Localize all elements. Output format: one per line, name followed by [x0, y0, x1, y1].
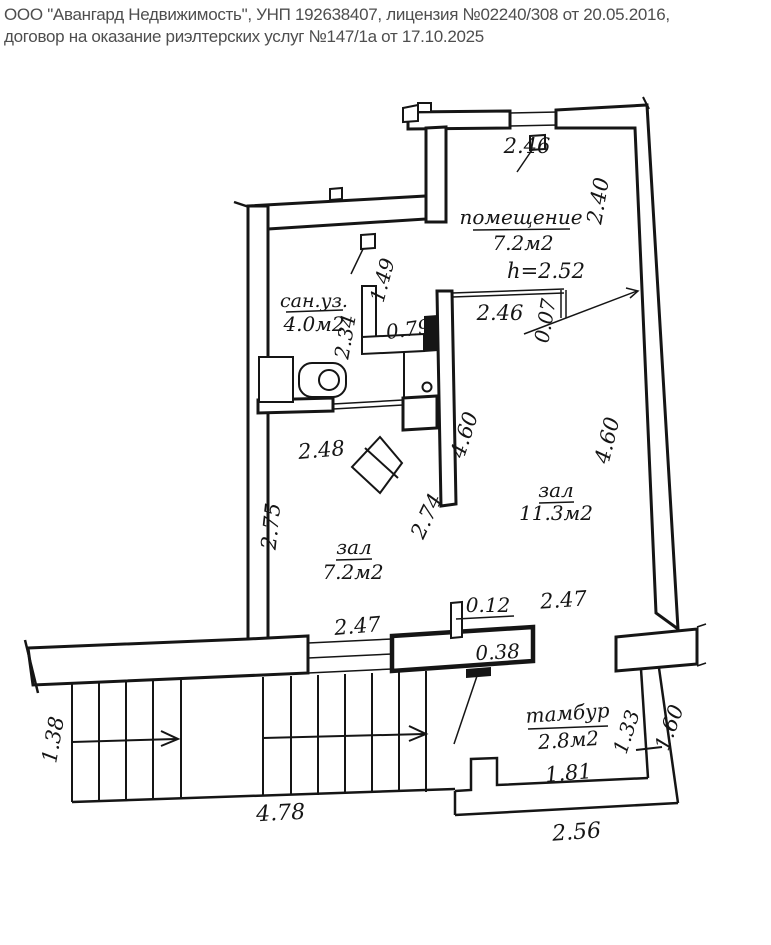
dim-pom-partition-thk: 0.07	[529, 297, 560, 345]
block-notch	[466, 667, 491, 678]
table-icon	[352, 437, 402, 493]
floor-plan-page: ООО "Авангард Недвижимость", УНП 1926384…	[0, 0, 771, 945]
wall-sanuz-bottom-right	[403, 396, 437, 430]
dim-tambour-inner-width: 1.81	[544, 759, 593, 787]
room-hall-big-area: 11.3м2	[519, 501, 593, 525]
dim-tambour-right-outer: 1.60	[650, 702, 689, 754]
dim-stairs-run-len: 4.78	[255, 800, 306, 828]
wall-inner-partition	[437, 291, 456, 506]
dim-right-wall-len: 4.60	[590, 415, 625, 467]
room-pomeshchenie-underline	[473, 229, 570, 230]
wall-stub-012	[451, 602, 462, 638]
window-bottom	[308, 639, 392, 673]
wall-top-left-flare	[403, 105, 418, 122]
room-sanuzel-label: сан.уз.	[280, 290, 348, 312]
room-hall-small-area: 7.2м2	[322, 560, 383, 584]
floor-plan-svg: помещение 7.2м2 h=2.52 сан.уз. 4.0м2 зал…	[0, 0, 771, 945]
lamp-icon-sanuzel	[351, 234, 375, 274]
wall-right	[556, 105, 678, 629]
stairs-flight1-centerline	[72, 739, 176, 742]
toilet-bowl-icon	[319, 370, 339, 390]
wall-stairs-top	[28, 636, 308, 685]
tambour-outer-bottom	[455, 803, 678, 815]
room-hall-big-label: зал	[538, 478, 574, 502]
wall-sanuz-top-stub	[330, 188, 342, 200]
sanuz-door-line1	[333, 400, 403, 404]
dim-pom-partition-len: 2.46	[476, 301, 524, 325]
pier-tick-top	[697, 624, 706, 627]
cabinet-icon	[259, 357, 293, 402]
room-hall-small-label: зал	[336, 535, 372, 559]
tambour-inner-right	[641, 669, 648, 778]
dim-hall-small-right: 2.74	[405, 490, 447, 543]
room-pomeshchenie-label: помещение	[459, 205, 582, 229]
stairs-flight2-treads	[263, 671, 426, 796]
dim-stairs-flight-width: 1.38	[37, 715, 69, 765]
wall-top-left-stub	[418, 103, 431, 112]
dim-stub-width: 0.12	[466, 593, 511, 617]
room-tambour-area: 2.8м2	[536, 726, 600, 754]
dim-right-wall-upper: 2.40	[582, 176, 614, 227]
dim-hall-small-left: 2.75	[257, 502, 286, 552]
ceiling-height-note: h=2.52	[507, 259, 585, 283]
dim-window-width: 2.47	[332, 612, 382, 640]
dim-block-width: 0.38	[475, 639, 521, 665]
room-tambour-label: тамбур	[525, 698, 611, 728]
room-pomeshchenie-area: 7.2м2	[492, 231, 553, 255]
dim-top-window: 2.46	[503, 134, 551, 158]
dim-sanuz-width: 2.48	[296, 436, 346, 464]
dim-hall-big-bottom: 2.47	[538, 586, 588, 613]
sanuz-door-line2	[333, 405, 403, 409]
dim-closet-depth: 1.49	[365, 255, 400, 304]
window-top	[510, 112, 558, 126]
door-handle-icon	[423, 383, 432, 392]
wall-right-pier	[616, 629, 697, 671]
wall-pom-left	[426, 127, 446, 222]
stairs	[72, 671, 455, 802]
tambour-leader	[454, 676, 477, 744]
wall-left	[248, 206, 268, 640]
wall-top-left	[408, 111, 510, 129]
dim-tambour-outer-width: 2.56	[550, 818, 602, 846]
wall-sanuz-top	[248, 196, 426, 230]
